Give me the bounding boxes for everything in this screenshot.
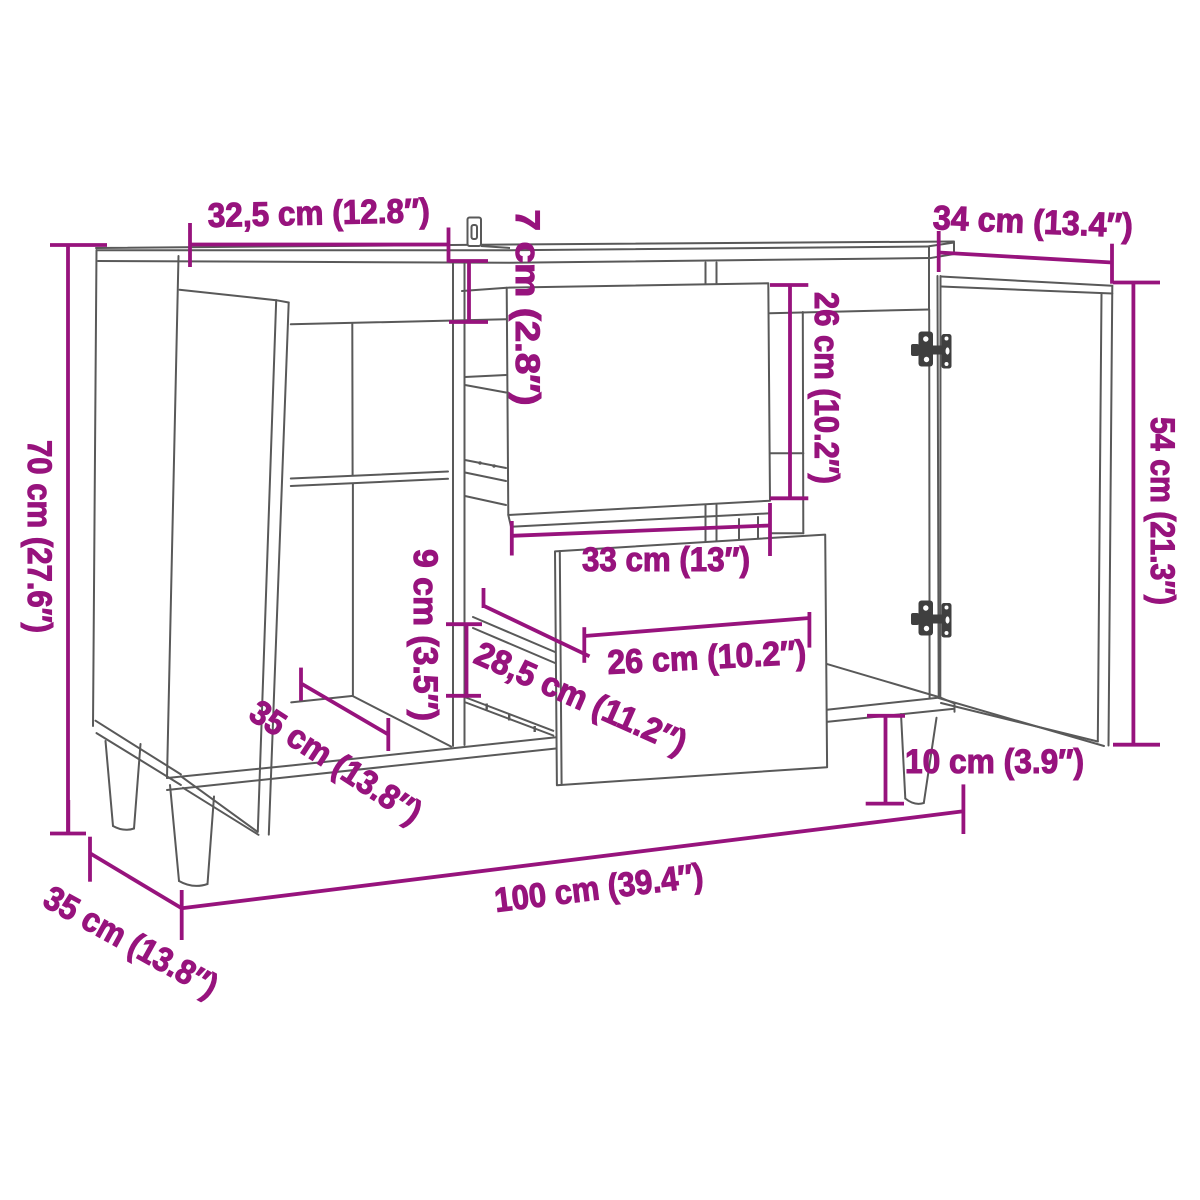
svg-text:54 cm (21.3″): 54 cm (21.3″) bbox=[1143, 417, 1181, 605]
svg-text:33 cm (13″): 33 cm (13″) bbox=[582, 541, 750, 579]
svg-text:9 cm (3.5″): 9 cm (3.5″) bbox=[406, 549, 444, 721]
svg-text:10 cm (3.9″): 10 cm (3.9″) bbox=[905, 743, 1084, 781]
svg-text:7 cm (2.8″): 7 cm (2.8″) bbox=[508, 210, 546, 406]
svg-text:32,5 cm (12.8″): 32,5 cm (12.8″) bbox=[207, 192, 430, 235]
svg-text:26 cm (10.2″): 26 cm (10.2″) bbox=[807, 292, 845, 484]
svg-text:70 cm (27.6″): 70 cm (27.6″) bbox=[20, 440, 58, 633]
